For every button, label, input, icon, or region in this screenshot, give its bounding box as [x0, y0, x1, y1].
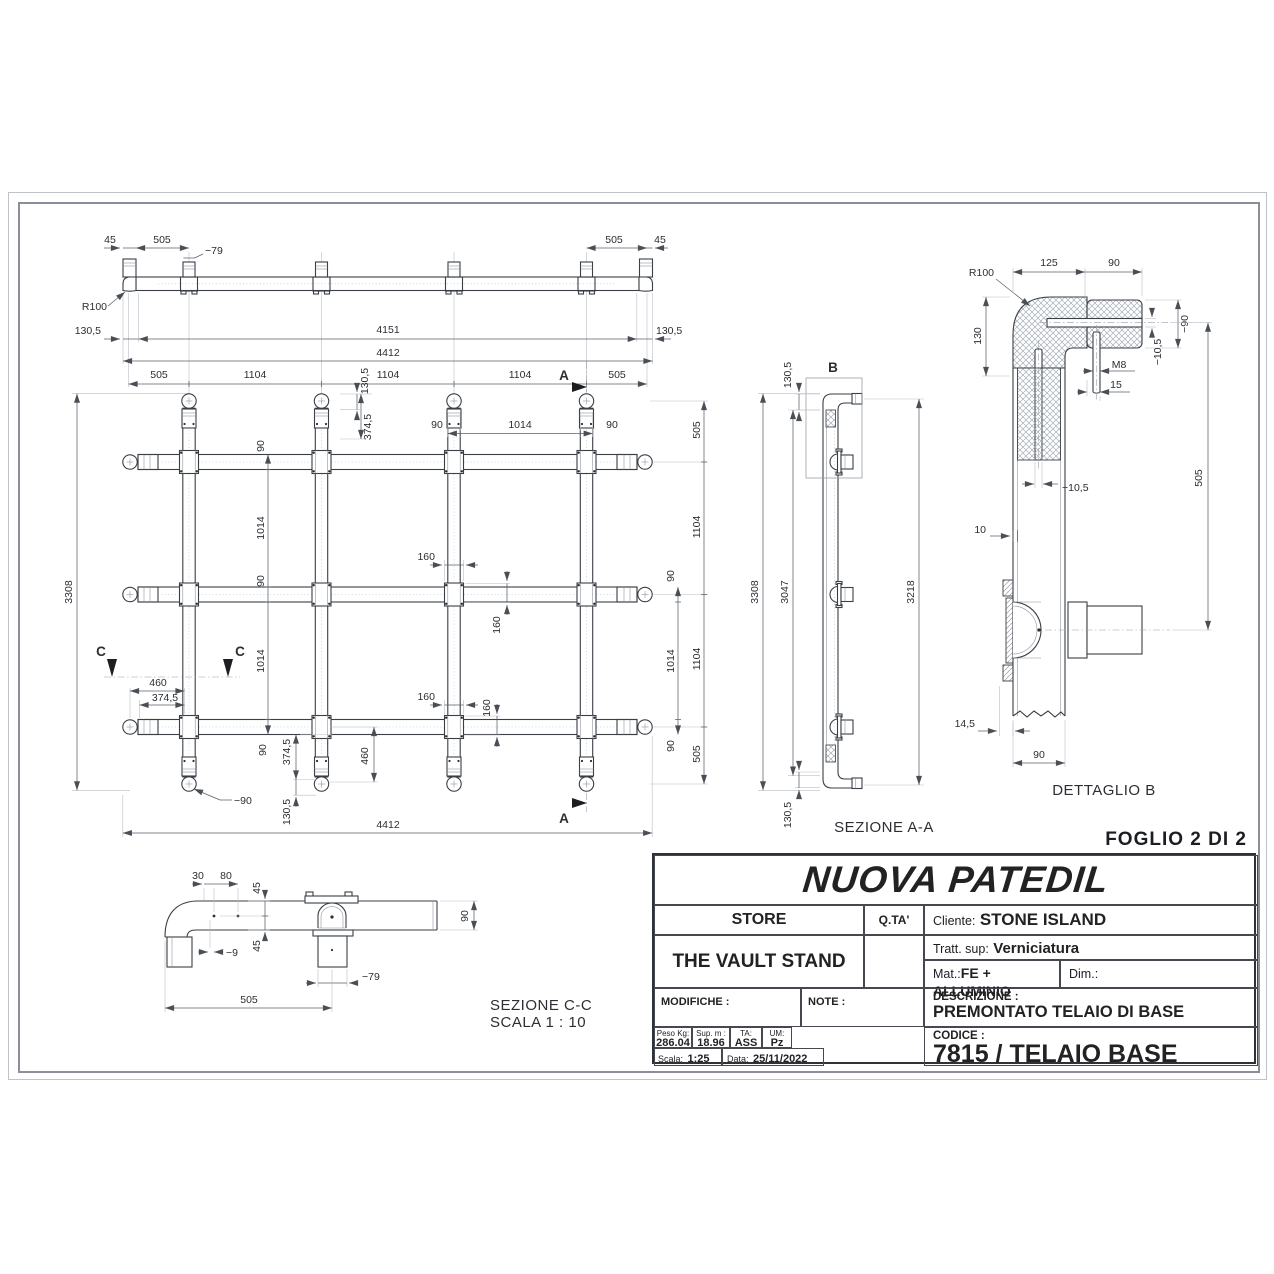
dim-ri-90b: 90 — [665, 740, 677, 752]
dim-r100: R100 — [82, 301, 107, 313]
dim-90-top-left: 90 — [431, 419, 443, 431]
dim-aa-3047: 3047 — [779, 580, 791, 604]
drawing-sheet: 45 505 −79 505 45 R100 130,5 4151 130,5 … — [0, 0, 1274, 1274]
descrizione-label: DESCRIZIONE : — [933, 991, 1257, 1003]
data-label: Data: — [727, 1054, 749, 1064]
section-a-label-bottom: A — [559, 811, 569, 826]
store-cell: STORE — [654, 905, 864, 935]
title-block: NUOVA PATEDIL STORE Q.TA' Cliente: STONE… — [652, 853, 1256, 1064]
sup-cell: Sup. m : 18.96 — [692, 1027, 730, 1048]
descrizione-cell: DESCRIZIONE : PREMONTATO TELAIO DI BASE — [924, 988, 1258, 1027]
dim-cc-90: 90 — [459, 910, 471, 922]
dim-4412-top: 4412 — [376, 347, 400, 359]
section-c-label-right: C — [235, 644, 245, 659]
note-cell: NOTE : — [801, 988, 924, 1027]
brand-logo: NUOVA PATEDIL — [801, 859, 1111, 901]
dim-row-1104b: 1104 — [377, 369, 400, 381]
dim-1305-left: 130,5 — [75, 325, 101, 337]
dim-row-505b: 505 — [608, 369, 626, 381]
dim-lc-1014b: 1014 — [255, 649, 267, 673]
peso-value: 286.04 — [655, 1038, 691, 1048]
data-value: 25/11/2022 — [753, 1053, 807, 1065]
dim-1014-top: 1014 — [508, 419, 532, 431]
dim-4412-bottom: 4412 — [376, 819, 400, 831]
detail-b-title: DETTAGLIO B — [1052, 782, 1156, 799]
dim-dia79: −79 — [205, 245, 223, 257]
section-cc-title: SEZIONE C-C — [490, 997, 592, 1014]
dim-90-top-right: 90 — [606, 419, 618, 431]
section-a-label-top: A — [559, 368, 569, 383]
dim-db-15: 15 — [1110, 379, 1122, 391]
dim-160-c: 160 — [417, 691, 435, 703]
scala-cell: Scala: 1:25 — [654, 1048, 722, 1066]
scala-value: 1:25 — [687, 1053, 709, 1065]
note-label: NOTE : — [808, 996, 845, 1008]
dim-ro-1104b: 1104 — [691, 648, 703, 671]
cliente-label: Cliente: — [933, 914, 975, 928]
dim-db-125: 125 — [1040, 257, 1058, 269]
dim-3745-left: 374,5 — [152, 692, 178, 704]
dim-45-left: 45 — [104, 234, 116, 246]
scala-label: Scala: — [658, 1054, 683, 1064]
brand-cell: NUOVA PATEDIL — [654, 855, 1258, 905]
dim-row-1104a: 1104 — [244, 369, 267, 381]
section-cc-scale: SCALA 1 : 10 — [490, 1014, 586, 1031]
dim-cc-30: 30 — [192, 870, 204, 882]
cliente-value: STONE ISLAND — [980, 910, 1106, 929]
dim-lc-90b: 90 — [255, 575, 267, 587]
dim-45-right: 45 — [654, 234, 666, 246]
dim-3745-bottom: 374,5 — [281, 739, 293, 765]
dim-1305-plan-top: 130,5 — [359, 368, 371, 394]
front-elevation-view: 45 505 −79 505 45 R100 130,5 4151 130,5 … — [75, 234, 683, 397]
dim-cell: Dim.: — [1060, 960, 1258, 988]
dim-cc-505: 505 — [240, 994, 258, 1006]
dim-ri-90a: 90 — [665, 570, 677, 582]
plan-view: 3308 130,5 374,5 90 1014 90 — [63, 362, 708, 837]
qta-value-cell — [864, 935, 924, 988]
dim-lc-1014a: 1014 — [255, 516, 267, 540]
dim-3308-plan: 3308 — [63, 580, 75, 604]
dim-lc-90c: 90 — [257, 744, 269, 756]
section-c-arrow-right — [223, 659, 233, 677]
dim-4151: 4151 — [376, 324, 400, 336]
dim-1305-right: 130,5 — [656, 325, 682, 337]
dim-aa-3218: 3218 — [905, 580, 917, 604]
ta-value: ASS — [731, 1038, 761, 1048]
dim-505-right: 505 — [605, 234, 623, 246]
dim-cc-45a: 45 — [251, 882, 263, 894]
mat-label: Mat.: — [933, 967, 961, 981]
dim-cc-80: 80 — [220, 870, 232, 882]
codice-cell: CODICE : 7815 / TELAIO BASE — [924, 1027, 1258, 1066]
tratt-cell: Tratt. sup: Verniciatura — [924, 935, 1258, 960]
dim-1305-bottom: 130,5 — [281, 799, 293, 825]
dim-db-dia105-mid: −10,5 — [1062, 482, 1089, 494]
detail-b-letter: B — [828, 360, 838, 375]
detail-b-view: R100 125 90 130 −90 −10,5 M8 — [955, 257, 1212, 799]
dim-505-left: 505 — [153, 234, 171, 246]
dim-ri-1014: 1014 — [665, 649, 677, 673]
descrizione-value: PREMONTATO TELAIO DI BASE — [933, 1003, 1184, 1021]
ta-cell: TA: ASS — [730, 1027, 762, 1048]
section-aa-view: B 130,5 3308 3047 3218 130,5 — [749, 360, 934, 836]
dim-cc-45b: 45 — [251, 940, 263, 952]
section-aa-title: SEZIONE A-A — [834, 819, 934, 836]
tratt-value: Verniciatura — [993, 940, 1079, 957]
dim-ro-505a: 505 — [691, 421, 703, 439]
cad-drawing-canvas: 45 505 −79 505 45 R100 130,5 4151 130,5 … — [0, 0, 1274, 1274]
data-cell: Data: 25/11/2022 — [722, 1048, 824, 1066]
foglio-label: FOGLIO 2 DI 2 — [950, 829, 1247, 851]
dim-row-1104c: 1104 — [509, 369, 532, 381]
dim-db-10: 10 — [974, 524, 986, 536]
dim-row-505a: 505 — [150, 369, 168, 381]
dim-160-a: 160 — [417, 551, 435, 563]
dim-db-90-bottom: 90 — [1033, 749, 1045, 761]
dim-label: Dim.: — [1069, 967, 1098, 981]
section-a-arrow-bottom — [572, 798, 587, 808]
modifiche-label: MODIFICHE : — [661, 996, 729, 1008]
dim-160-d: 160 — [481, 699, 493, 717]
section-c-label-left: C — [96, 644, 106, 659]
dim-db-m8: M8 — [1112, 359, 1127, 371]
section-cc-view: 30 80 45 45 −9 −79 — [165, 870, 592, 1031]
um-value: Pz — [763, 1038, 791, 1048]
cliente-cell: Cliente: STONE ISLAND — [924, 905, 1258, 935]
dim-3745-plan-top: 374,5 — [362, 414, 374, 440]
dim-db-90-top: 90 — [1108, 257, 1120, 269]
qta-header-cell: Q.TA' — [864, 905, 924, 935]
dim-ro-1104a: 1104 — [691, 516, 703, 539]
dim-db-505: 505 — [1193, 469, 1205, 487]
dim-cc-dia79: −79 — [362, 971, 380, 983]
modifiche-cell: MODIFICHE : — [654, 988, 801, 1027]
sup-value: 18.96 — [693, 1038, 729, 1048]
dim-ro-505b: 505 — [691, 745, 703, 763]
dim-160-b: 160 — [491, 616, 503, 634]
tratt-label: Tratt. sup: — [933, 942, 989, 956]
dim-cc-dia9: −9 — [226, 947, 238, 959]
dim-aa-3308: 3308 — [749, 580, 761, 604]
dim-460-left: 460 — [149, 677, 167, 689]
mat-cell: Mat.:FE + ALLUMINIO — [924, 960, 1060, 988]
product-cell: THE VAULT STAND — [654, 935, 864, 988]
dim-dia90-plan: −90 — [234, 795, 252, 807]
um-cell: UM: Pz — [762, 1027, 792, 1048]
dim-lc-90a: 90 — [255, 440, 267, 452]
dim-db-145: 14,5 — [955, 718, 976, 730]
dim-db-dia105-top: −10,5 — [1152, 339, 1164, 366]
dim-db-130: 130 — [972, 327, 984, 345]
peso-cell: Peso Kg: 286.04 — [654, 1027, 692, 1048]
section-a-arrow-top — [572, 382, 587, 392]
dim-aa-1305-top: 130,5 — [782, 362, 794, 388]
dim-460-bottom: 460 — [359, 747, 371, 765]
dim-aa-1305-bottom: 130,5 — [782, 802, 794, 828]
section-c-arrow-left — [107, 659, 117, 677]
codice-value: 7815 / TELAIO BASE — [933, 1040, 1178, 1068]
dim-db-r100: R100 — [969, 267, 994, 279]
dim-db-dia90: −90 — [1179, 315, 1191, 333]
